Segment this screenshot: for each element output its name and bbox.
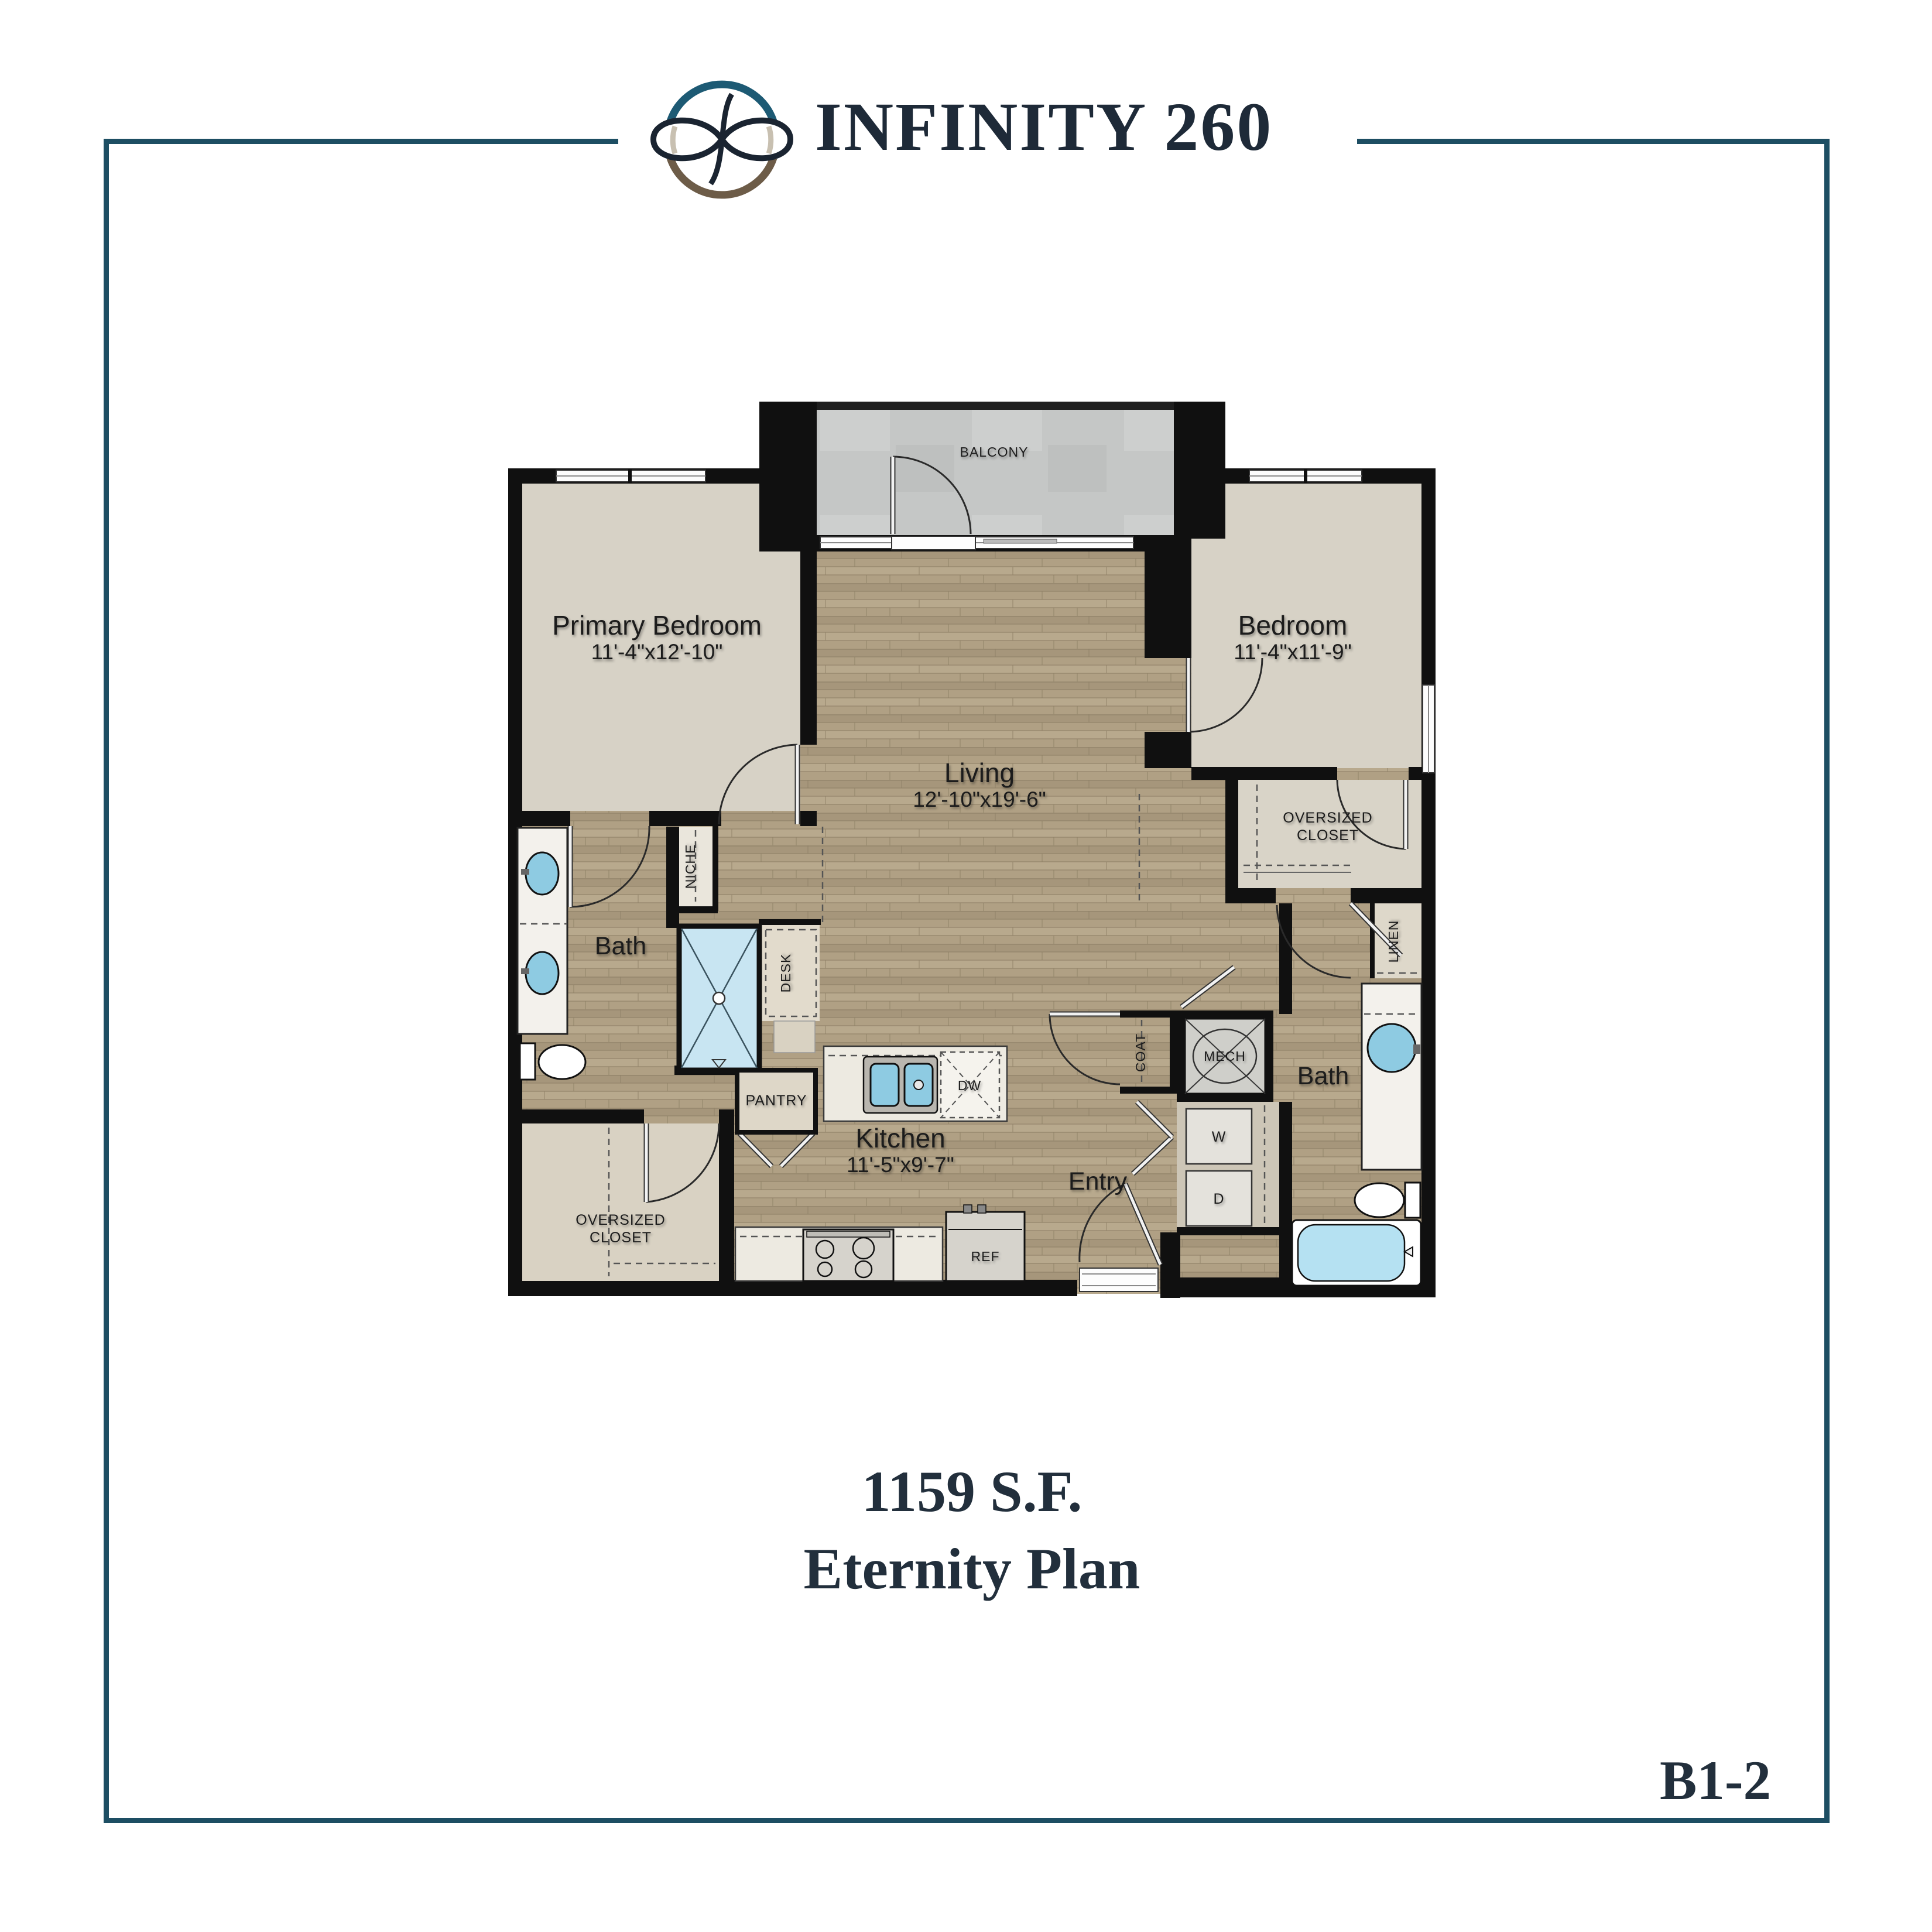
- closet-primary-label-1: OVERSIZED: [576, 1212, 665, 1228]
- living-label: Living: [944, 758, 1015, 788]
- plan-area: 1159 S.F.: [591, 1462, 1352, 1521]
- bedroom-dims: 11'-4"x11'-9": [1234, 640, 1352, 664]
- floor-plan-page: INFINITY 260: [0, 0, 1932, 1932]
- mech-label: MECH: [1204, 1049, 1246, 1064]
- floor-plan: BALCONY Primary Bedroom 11'-4"x12'-10" B…: [503, 386, 1440, 1300]
- linen-label: LINEN: [1386, 920, 1401, 963]
- plan-summary: 1159 S.F. Eternity Plan: [591, 1462, 1352, 1598]
- refrigerator-box: [946, 1205, 1025, 1281]
- closet-primary-floor: [522, 1123, 719, 1281]
- washer-label: W: [1212, 1129, 1227, 1145]
- primary-bath-vanity: [518, 828, 567, 1034]
- desk-label: DESK: [778, 954, 793, 993]
- primary-bedroom-dims: 11'-4"x12'-10": [591, 640, 723, 664]
- primary-toilet: [520, 1043, 585, 1080]
- balcony-floor: [817, 410, 1174, 536]
- community-title: INFINITY 260: [815, 93, 1273, 162]
- closet-second-label-1: OVERSIZED: [1283, 810, 1372, 826]
- shower: [679, 926, 759, 1070]
- closet-second-label-2: CLOSET: [1297, 827, 1359, 844]
- infinity-logo-icon: [643, 50, 801, 226]
- second-bath-label: Bath: [1297, 1062, 1349, 1090]
- niche-label: NICHE: [683, 844, 698, 889]
- pantry-label: PANTRY: [745, 1092, 807, 1109]
- refrigerator-label: REF: [971, 1249, 1000, 1264]
- coat-label: COAT: [1133, 1033, 1148, 1072]
- closet-primary-label-2: CLOSET: [590, 1229, 652, 1246]
- plan-name: Eternity Plan: [591, 1540, 1352, 1598]
- kitchen-label: Kitchen: [855, 1123, 945, 1153]
- bathtub: [1292, 1220, 1421, 1286]
- bedroom-label: Bedroom: [1238, 610, 1348, 640]
- plan-code: B1-2: [1598, 1753, 1832, 1808]
- living-dims: 12'-10"x19'-6": [913, 787, 1046, 811]
- dryer-label: D: [1213, 1191, 1224, 1207]
- primary-bath-label: Bath: [595, 932, 646, 960]
- kitchen-counter: [735, 1227, 943, 1281]
- balcony-label: BALCONY: [960, 444, 1029, 460]
- infinity-logo: [643, 50, 801, 226]
- second-toilet: [1355, 1183, 1420, 1218]
- primary-bedroom-label: Primary Bedroom: [552, 610, 762, 640]
- entry-label: Entry: [1068, 1167, 1128, 1195]
- kitchen-dims: 11'-5"x9'-7": [847, 1153, 954, 1177]
- dishwasher-label: DW: [958, 1078, 981, 1093]
- second-bath-vanity: [1362, 984, 1421, 1170]
